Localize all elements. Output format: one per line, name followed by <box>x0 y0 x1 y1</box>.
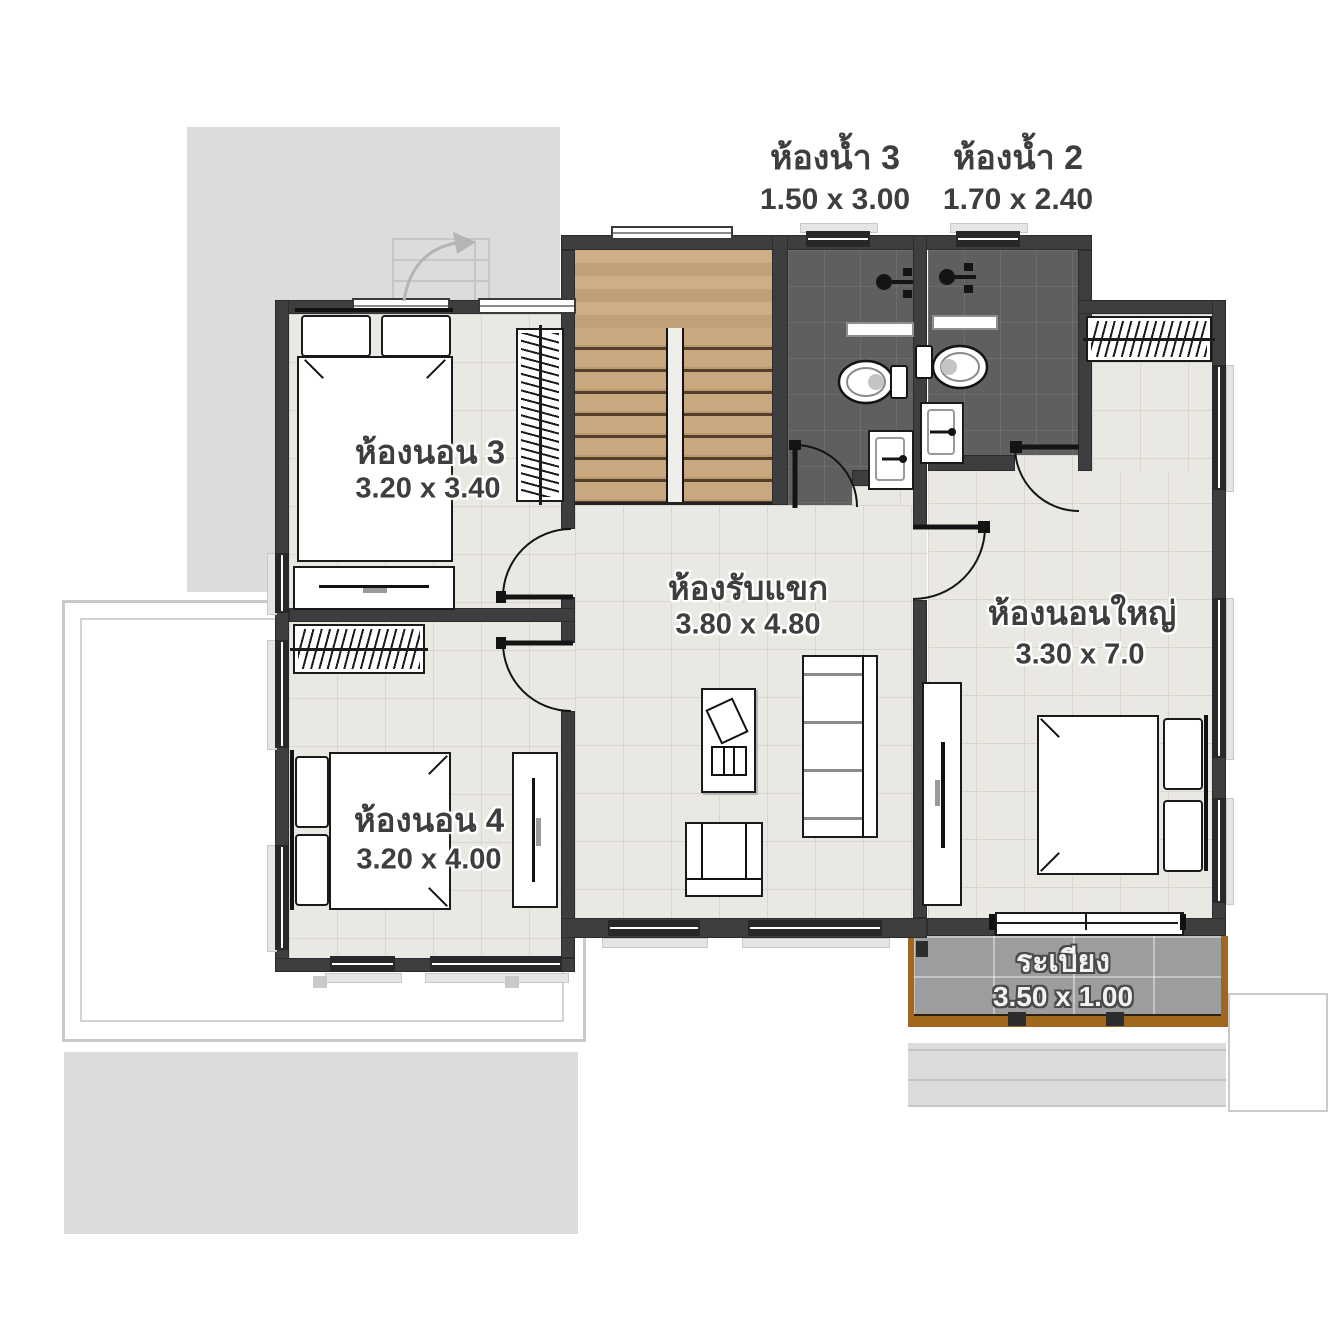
armchair-front-line <box>687 878 761 880</box>
floor-plan: ห้องน้ำ 3 1.50 x 3.00 ห้องน้ำ 2 1.70 x 2… <box>0 0 1334 1335</box>
living-room-dims: 3.80 x 4.80 <box>675 609 820 642</box>
tray-line <box>733 748 735 774</box>
wall-foot <box>505 976 519 988</box>
bathroom3-label: ห้องน้ำ 3 <box>770 130 900 184</box>
balcony-post <box>1106 1012 1124 1026</box>
sliding-door-divider <box>1085 914 1087 930</box>
balcony-label: ระเบียง <box>1016 939 1110 986</box>
tray-line <box>723 748 725 774</box>
dresser-handle <box>536 818 541 846</box>
master-bed-mattress <box>1037 715 1159 875</box>
dresser-handle-line <box>532 778 535 882</box>
master-bed-pillow <box>1163 718 1203 790</box>
bedroom4-label: ห้องนอน 4 <box>354 794 504 847</box>
bathroom3-shelf <box>846 322 914 337</box>
bedroom4-closet <box>293 624 425 674</box>
door-end-cap <box>1180 914 1186 930</box>
sofa-cushion-line <box>804 721 862 724</box>
balcony-wood-edge-right <box>1221 936 1228 1025</box>
window-sill <box>1226 365 1234 492</box>
balcony-sliding-door <box>995 912 1184 936</box>
sliding-door-rail <box>997 922 1178 924</box>
wall-master-bottom <box>927 918 995 936</box>
balcony-wood-edge-left <box>908 936 914 1025</box>
bathroom3-sink <box>868 430 914 490</box>
window-sill <box>742 938 890 948</box>
blanket-fold <box>1040 852 1060 872</box>
bed4-pillow <box>295 834 329 906</box>
tray <box>711 746 747 776</box>
tv-line <box>941 742 945 848</box>
blanket-fold <box>304 359 324 379</box>
note-line <box>474 240 476 302</box>
wall-center <box>913 235 927 527</box>
bed3-headboard <box>295 308 453 312</box>
bedroom3-dims: 3.20 x 3.40 <box>355 473 500 506</box>
armchair <box>685 822 763 897</box>
stair-divider <box>666 328 684 503</box>
bedroom4-left-window <box>275 640 289 748</box>
coffee-table <box>701 688 756 793</box>
wall-master-top <box>1078 300 1226 314</box>
blanket-fold <box>428 755 448 775</box>
bedroom4-left-window <box>275 845 289 950</box>
balcony-post <box>916 941 928 957</box>
window-sill <box>425 973 569 983</box>
bed4-headboard <box>290 750 294 910</box>
armchair-arm-line <box>745 824 747 878</box>
bedroom3-left-window <box>275 553 289 613</box>
master-right-window <box>1212 798 1226 903</box>
sink-basin <box>875 437 905 481</box>
living-bottom-window <box>608 920 700 936</box>
bedroom4-bottom-window <box>330 956 395 972</box>
bed4-pillow <box>295 756 329 828</box>
balcony-post <box>1008 1012 1026 1026</box>
master-dresser <box>922 682 962 906</box>
bed3-pillow <box>301 315 371 357</box>
master-right-window <box>1212 365 1226 490</box>
bedroom3-dresser <box>293 566 455 610</box>
wall-stair-bath3 <box>772 235 788 505</box>
roof-step-line <box>908 1049 1226 1051</box>
stair-bottom-edge <box>575 502 772 505</box>
bathroom2-label: ห้องน้ำ 2 <box>953 130 1083 184</box>
window-sill <box>1226 798 1234 905</box>
bathroom3-window <box>806 231 870 247</box>
bathroom2-window <box>956 231 1020 247</box>
bathroom3-dims: 1.50 x 3.00 <box>760 183 910 217</box>
master-bedroom-label: ห้องนอนใหญ่ <box>988 587 1177 640</box>
stair-window <box>611 226 733 240</box>
balcony-wood-edge-bottom <box>908 1014 1228 1027</box>
master-right-window <box>1212 598 1226 758</box>
window-sill <box>325 973 402 983</box>
sink-basin <box>927 409 955 455</box>
roof-below-balcony <box>908 1043 1226 1107</box>
bedroom4-dresser <box>512 752 558 908</box>
bedroom4-bottom-window <box>430 956 562 972</box>
window-sill <box>1226 598 1234 760</box>
bedroom3-label: ห้องนอน 3 <box>355 426 505 479</box>
dresser-handle <box>935 780 940 806</box>
living-room-label: ห้องรับแขก <box>668 562 828 615</box>
roof-step-line <box>908 1079 1226 1081</box>
master-bed-pillow <box>1163 800 1203 872</box>
armchair-arm-line <box>701 824 703 878</box>
blanket-fold <box>426 359 446 379</box>
sofa-cushion-line <box>804 817 862 820</box>
sofa <box>802 655 878 838</box>
dresser-handle <box>363 588 387 593</box>
master-bed-headboard <box>1204 715 1208 871</box>
master-closet <box>1086 316 1212 362</box>
book-stack <box>705 697 748 744</box>
bedroom3-wardrobe <box>516 328 564 502</box>
sofa-cushion-line <box>804 769 862 772</box>
bedroom4-dims: 3.20 x 4.00 <box>356 844 501 877</box>
roof-bottom-left-lower <box>64 1052 578 1234</box>
door-end-cap <box>989 914 995 930</box>
master-bedroom-dims: 3.30 x 7.0 <box>1016 639 1145 672</box>
balcony-dims: 3.50 x 1.00 <box>993 981 1133 1013</box>
bathroom2-sink <box>920 402 964 464</box>
wall-foot <box>313 976 327 988</box>
roof-right-of-balcony <box>1228 993 1328 1112</box>
bed3-pillow <box>381 315 451 357</box>
living-bottom-window <box>748 920 882 936</box>
blanket-fold <box>1040 718 1060 738</box>
stair-run-note-box <box>392 238 490 304</box>
blanket-fold <box>428 887 448 907</box>
wall-bedroom-divider <box>289 608 575 622</box>
bedroom3-top-window <box>478 298 576 314</box>
bathroom2-shelf <box>932 315 998 330</box>
stair-landing <box>575 250 772 328</box>
sofa-cushion-line <box>804 673 862 676</box>
wall-master-bottom <box>1180 918 1226 936</box>
window-sill <box>602 938 708 948</box>
bathroom2-dims: 1.70 x 2.40 <box>943 183 1093 217</box>
sofa-back-line <box>862 657 864 836</box>
